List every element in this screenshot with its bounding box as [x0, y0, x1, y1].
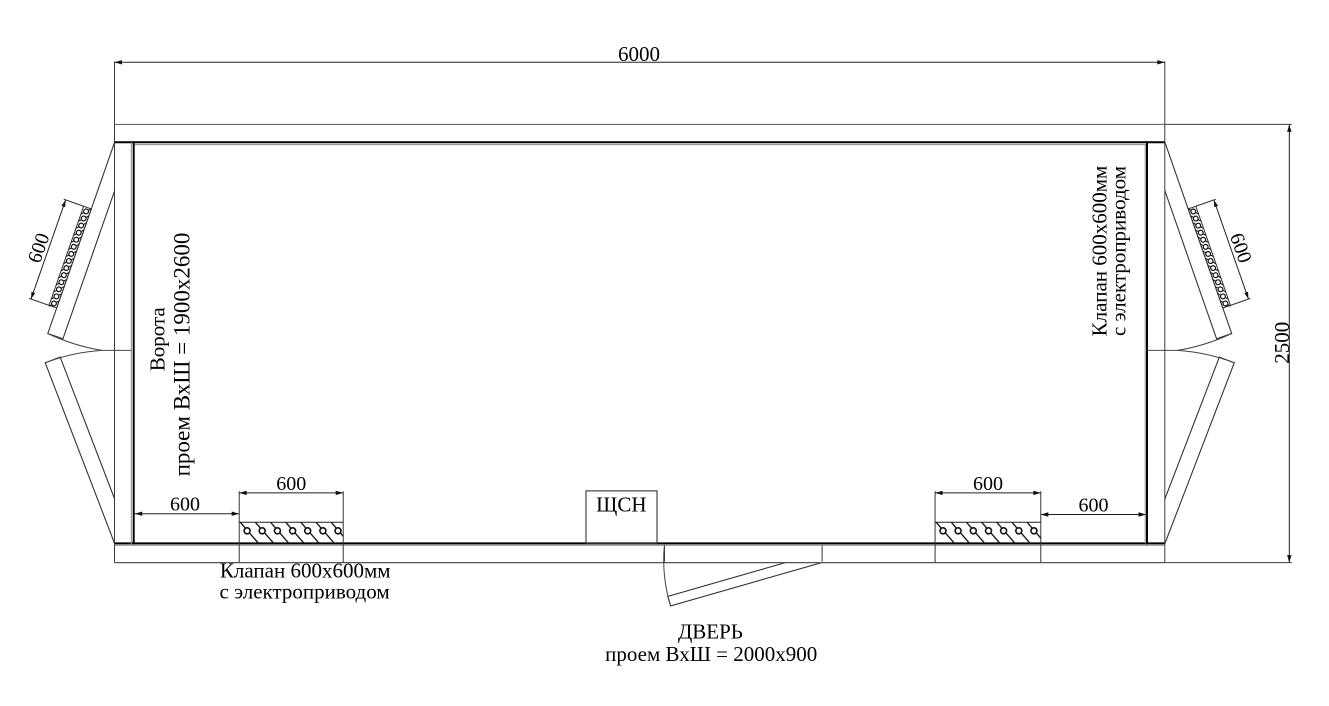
- svg-text:с электроприводом: с электроприводом: [1107, 166, 1131, 336]
- svg-text:проем ВхШ = 1900x2600: проем ВхШ = 1900x2600: [170, 233, 195, 477]
- svg-text:600: 600: [973, 473, 1003, 495]
- svg-text:Ворота: Ворота: [146, 307, 170, 372]
- svg-text:2500: 2500: [1270, 322, 1294, 364]
- svg-text:6000: 6000: [618, 42, 660, 66]
- svg-text:600: 600: [170, 494, 200, 516]
- svg-text:ЩСН: ЩСН: [596, 493, 646, 517]
- svg-text:600: 600: [276, 473, 306, 495]
- svg-text:600: 600: [1079, 495, 1109, 517]
- svg-text:600: 600: [24, 230, 55, 266]
- svg-text:проем ВхШ = 2000x900: проем ВхШ = 2000x900: [605, 642, 817, 666]
- svg-text:ДВЕРЬ: ДВЕРЬ: [678, 620, 743, 644]
- svg-text:с электроприводом: с электроприводом: [220, 580, 390, 604]
- svg-text:600: 600: [1225, 230, 1256, 266]
